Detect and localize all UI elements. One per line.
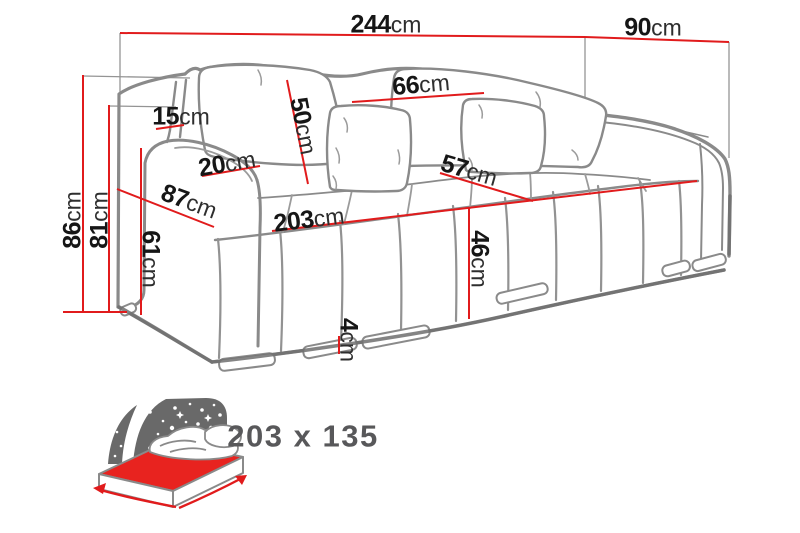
dim-value: 61 [137, 230, 165, 257]
dim-unit: cm [651, 15, 682, 41]
dim-value: 244 [351, 11, 391, 39]
dim-value: 81 [86, 222, 114, 249]
dim-total-depth: 90cm [624, 16, 681, 41]
dim-back-cushion-width: 66cm [391, 70, 450, 100]
dim-unit: cm [290, 122, 321, 157]
dim-unit: cm [60, 191, 86, 222]
dim-value: 66 [391, 71, 420, 101]
dim-unit: cm [138, 257, 164, 288]
sleeping-area-size-label: 203 x 135 [227, 421, 378, 452]
dim-unit: cm [391, 12, 422, 38]
dimension-diagram: 244cm 90cm 66cm 50cm 15cm 20cm 87cm 86cm… [0, 0, 800, 533]
dim-value: 86 [59, 222, 87, 249]
dim-value: 15 [152, 103, 179, 131]
sleeping-function-icon [93, 398, 247, 508]
dim-value: 46 [466, 230, 494, 257]
dim-value: 4 [335, 318, 363, 331]
dim-back-side-panel: 15cm [152, 105, 209, 130]
dim-unit: cm [223, 146, 258, 177]
dim-backrest-height: 81cm [88, 191, 113, 248]
dim-seat-height: 46cm [467, 230, 492, 287]
dim-total-width: 244cm [351, 13, 422, 38]
dim-total-height: 86cm [61, 191, 86, 248]
dim-unit: cm [336, 331, 362, 362]
dim-unit: cm [87, 191, 113, 222]
dim-leg-height: 4cm [336, 318, 361, 362]
dim-value: 90 [624, 14, 651, 42]
dim-unit: cm [418, 69, 451, 98]
dim-value: 203 [272, 205, 315, 238]
dim-unit: cm [179, 104, 210, 130]
dim-armrest-height: 61cm [138, 230, 163, 287]
dim-unit: cm [467, 257, 493, 288]
dim-unit: cm [312, 202, 346, 232]
